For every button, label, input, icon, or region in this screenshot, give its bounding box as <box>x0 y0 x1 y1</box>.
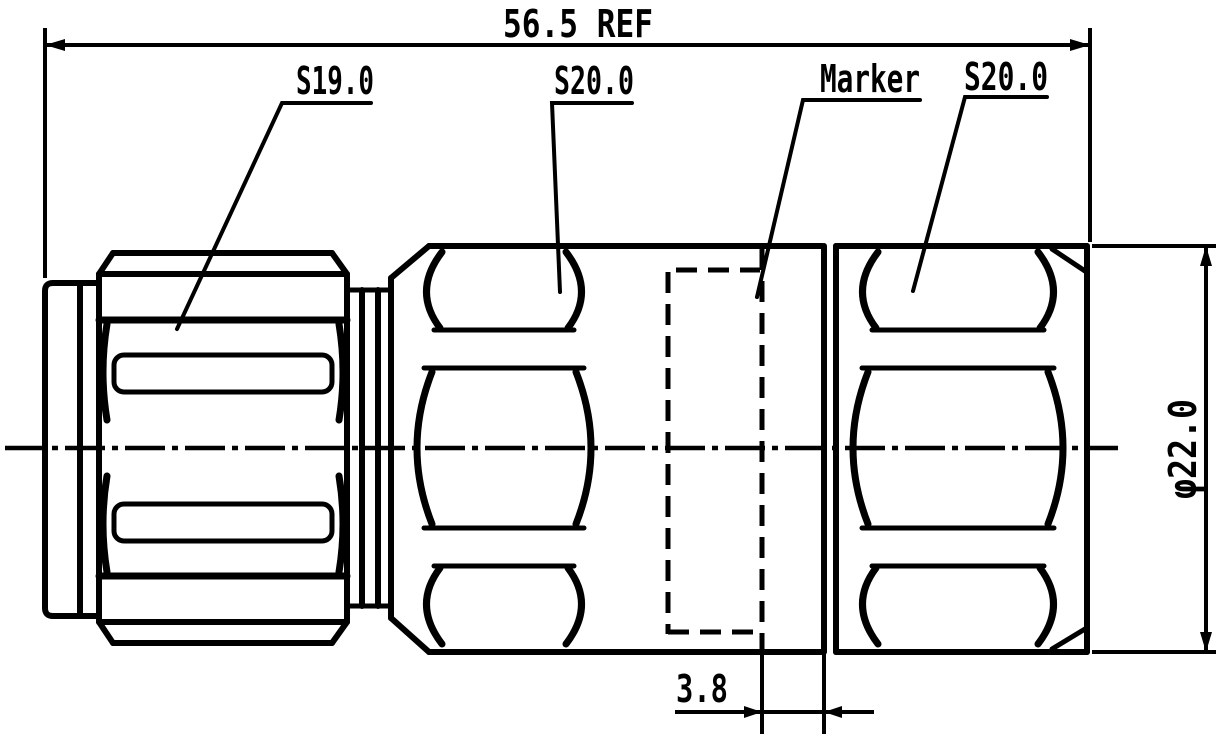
hex-s20-right-label: S20.0 <box>964 55 1048 99</box>
arrowhead-bottom <box>1200 632 1212 652</box>
body-groove <box>824 246 836 652</box>
hex-s19-label: S19.0 <box>296 59 374 103</box>
dim-overall-length: 56.5 REF <box>45 2 1090 278</box>
marker-offset-text: 3.8 <box>676 667 728 711</box>
arrowhead-right <box>1070 39 1090 51</box>
hex-s20-mid-label: S20.0 <box>554 59 634 103</box>
arrowhead-top <box>1200 246 1212 266</box>
arrowhead-left <box>45 39 65 51</box>
dim-marker-offset: 3.8 <box>675 652 874 734</box>
technical-drawing-canvas: 56.5 REF S19.0 S20.0 Marker S20.0 <box>0 0 1219 737</box>
outer-diameter-text: φ22.0 <box>1161 399 1205 499</box>
leader-s20-right: S20.0 <box>913 55 1048 291</box>
connector-outline-drawing: 56.5 REF S19.0 S20.0 Marker S20.0 <box>0 0 1219 737</box>
overall-length-text: 56.5 REF <box>503 2 653 46</box>
arrowhead-offset-left <box>744 706 762 718</box>
leader-s20-mid: S20.0 <box>552 59 634 292</box>
marker-hidden-outline <box>668 249 762 652</box>
marker-label: Marker <box>820 57 920 101</box>
arrowhead-offset-right <box>824 706 842 718</box>
